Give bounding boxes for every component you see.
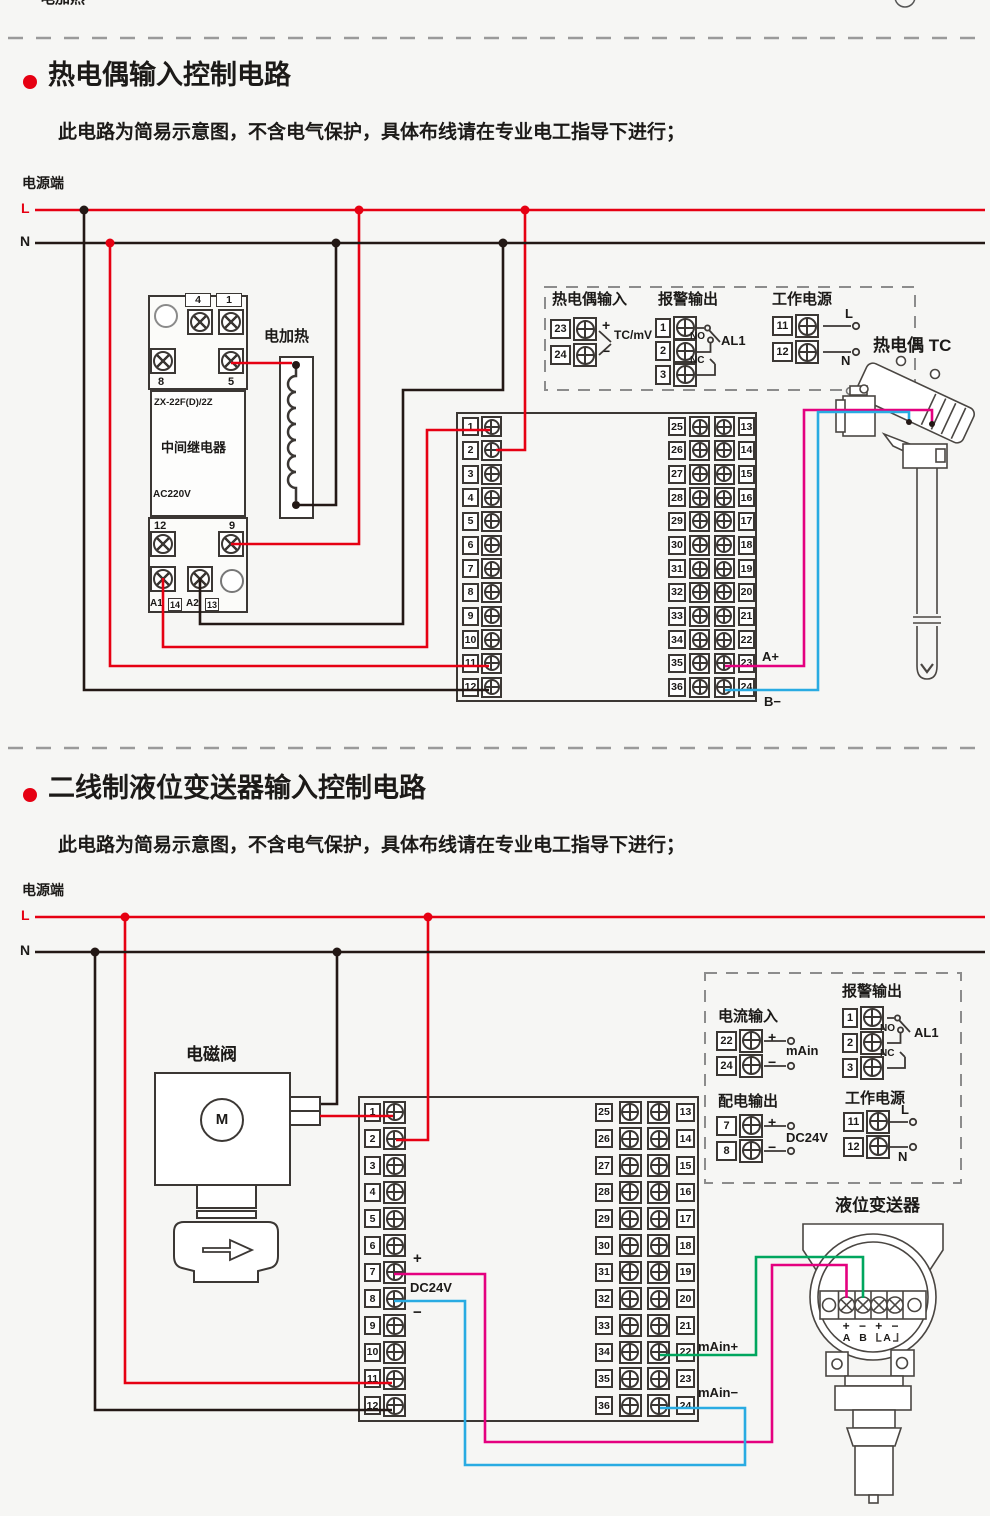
terminal-number: 2 [462, 441, 479, 460]
terminal-block-2: 1 2 3 4 5 6 7 8 [358, 1096, 699, 1422]
terminal-screw [647, 1367, 670, 1390]
wiring-diagram-page: 电加热 热电偶输入控制电路 此电路为简易示意图，不含电气保护，具体布线请在专业电… [0, 0, 990, 1516]
terminal-screw [647, 1127, 670, 1150]
terminal-number: 15 [738, 465, 755, 484]
terminal-block-1: 1 2 3 4 5 6 7 8 [456, 412, 757, 702]
section1-power-label: 电源端 [22, 175, 64, 191]
terminal-screw [714, 677, 735, 698]
terminal-row: 6 [364, 1234, 406, 1257]
io1-alarm-rows: 1 2 3 [655, 316, 697, 387]
io-terminal-number: 23 [550, 319, 571, 339]
terminal-number: 14 [738, 441, 755, 460]
solenoid-valve-drawing [155, 1073, 320, 1282]
terminal-screw [647, 1394, 670, 1417]
terminal-row: 6 [462, 535, 502, 556]
terminal-number: 29 [668, 512, 686, 531]
clipped-screw-icon [895, 0, 915, 7]
terminal-row: 5 [462, 511, 502, 532]
relay-model: ZX-22F(D)/2Z [154, 398, 213, 409]
terminal-number: 31 [668, 559, 686, 578]
heater-label: 电加热 [264, 328, 309, 345]
terminal-number: 5 [364, 1209, 381, 1228]
io-terminal-number: 3 [655, 365, 671, 385]
io-terminal-row: 7 + [716, 1113, 776, 1138]
terminal-number: 14 [676, 1129, 695, 1148]
terminal-screw [714, 487, 735, 508]
terminal-row: 32 20 [595, 1287, 695, 1310]
terminal-number: 12 [364, 1396, 381, 1415]
terminal-number: 26 [595, 1129, 613, 1148]
thermocouple-label: 热电偶 TC [873, 336, 951, 356]
terminal-screw [619, 1207, 642, 1230]
terminal-screw [481, 416, 502, 437]
terminal-row: 35 23 [595, 1367, 695, 1390]
io2-alarm-rows: 1 2 3 [842, 1005, 884, 1080]
relay-pin-label: A1 [150, 598, 163, 610]
terminal-screw [714, 464, 735, 485]
section1-bullet-icon [23, 75, 37, 89]
terminal-number: 9 [462, 607, 479, 626]
main-plus-label: mAin+ [698, 1340, 738, 1355]
terminal-screw [714, 511, 735, 532]
flow-arrow-icon [203, 1240, 252, 1260]
terminal-number: 6 [462, 536, 479, 555]
terminal-right-columns: 25 13 26 14 27 15 28 16 29 [595, 1099, 695, 1419]
terminal-screw [647, 1101, 670, 1124]
relay-pin-label: 5 [228, 376, 234, 389]
polarity-label: − [768, 1139, 776, 1155]
terminal-screw [619, 1181, 642, 1204]
terminal-screw [647, 1234, 670, 1257]
terminal-row: 30 18 [595, 1234, 695, 1257]
io-terminal-row: 11 [772, 313, 819, 339]
terminal-screw [619, 1314, 642, 1337]
terminal-number: 11 [364, 1369, 381, 1388]
level-transmitter-drawing [803, 1224, 943, 1503]
wire-label-b-minus: B− [764, 695, 781, 710]
terminal-number: 4 [364, 1183, 381, 1202]
terminal-screw [714, 606, 735, 627]
terminal-number: 23 [738, 654, 755, 673]
terminal-screw [383, 1341, 406, 1364]
io-terminal-number: 1 [842, 1008, 858, 1028]
terminal-row: 12 [462, 677, 502, 698]
terminal-row: 27 15 [668, 464, 755, 485]
terminal-screw [383, 1394, 406, 1417]
terminal-screw [689, 535, 710, 556]
terminal-screw [714, 416, 735, 437]
terminal-screw [714, 535, 735, 556]
terminal-screw [481, 629, 502, 650]
io-terminal-row: 24 − [716, 1053, 776, 1078]
terminal-number: 30 [595, 1236, 613, 1255]
terminal-number: 21 [676, 1316, 695, 1335]
io1-nc-label: NC [690, 355, 704, 367]
relay-hole-icon [154, 304, 178, 328]
polarity-label: − [602, 343, 610, 359]
terminal-row: 2 [462, 440, 502, 461]
terminal-number: 5 [462, 512, 479, 531]
io-terminal-number: 2 [655, 341, 671, 361]
io2-no-label: NO [880, 1023, 895, 1035]
terminal-row: 8 [462, 582, 502, 603]
terminal-row: 34 22 [668, 629, 755, 650]
terminal-number: 28 [668, 488, 686, 507]
dc-plus-label: + [413, 1250, 422, 1267]
relay-screw [218, 348, 244, 374]
terminal-screw [619, 1127, 642, 1150]
relay-screw [187, 309, 213, 335]
io-terminal-number: 24 [716, 1056, 737, 1076]
terminal-row: 34 22 [595, 1341, 695, 1364]
io1-tc-rows: 23 + 24 − [550, 316, 610, 368]
terminal-number: 32 [668, 583, 686, 602]
terminal-row: 3 [462, 464, 502, 485]
io-terminal-number: 8 [716, 1141, 737, 1161]
section1-title: 热电偶输入控制电路 [48, 60, 291, 91]
thermocouple-drawing [836, 357, 977, 680]
terminal-row: 7 [462, 558, 502, 579]
io1-tc-title: 热电偶输入 [552, 291, 627, 308]
relay-screw [218, 309, 244, 335]
terminal-right-columns: 25 13 26 14 27 15 28 16 29 [668, 415, 755, 699]
terminal-screw [689, 440, 710, 461]
io-terminal-number: 22 [716, 1031, 737, 1051]
terminal-screw [383, 1207, 406, 1230]
terminal-screw [383, 1261, 406, 1284]
terminal-number: 8 [364, 1289, 381, 1308]
terminal-row: 4 [462, 487, 502, 508]
io2-current-title: 电流输入 [718, 1008, 778, 1025]
terminal-screw [714, 653, 735, 674]
section1-subtitle: 此电路为简易示意图，不含电气保护，具体布线请在专业电工指导下进行； [58, 122, 685, 144]
terminal-screw [619, 1154, 642, 1177]
io-terminal-row: 11 [843, 1109, 890, 1134]
terminal-screw [714, 629, 735, 650]
heater-symbol [280, 357, 313, 518]
terminal-number: 17 [676, 1209, 695, 1228]
terminal-number: 3 [364, 1156, 381, 1175]
io-terminal-screw [673, 363, 697, 387]
terminal-screw [481, 677, 502, 698]
io-terminal-screw [739, 1139, 763, 1163]
terminal-screw [383, 1154, 406, 1177]
terminal-row: 33 21 [668, 606, 755, 627]
terminal-screw [383, 1101, 406, 1124]
power-pigtails-2 [889, 1122, 908, 1147]
terminal-row: 11 [364, 1367, 406, 1390]
io-terminal-row: 22 + [716, 1028, 776, 1053]
section1-line-n-label: N [20, 233, 30, 249]
terminal-row: 1 [364, 1101, 406, 1124]
terminal-row: 26 14 [595, 1127, 695, 1150]
terminal-screw [647, 1287, 670, 1310]
terminal-row: 4 [364, 1181, 406, 1204]
terminal-number: 29 [595, 1209, 613, 1228]
terminal-row: 28 16 [668, 487, 755, 508]
terminal-number: 25 [668, 417, 686, 436]
io-terminal-number: 11 [772, 316, 793, 336]
io-terminal-screw [573, 343, 597, 367]
terminal-row: 27 15 [595, 1154, 695, 1177]
terminal-screw [481, 487, 502, 508]
io-terminal-screw [795, 314, 819, 338]
io1-power-rows: 11 12 [772, 313, 819, 365]
relay-voltage: AC220V [153, 489, 191, 501]
io1-no-label: NO [690, 331, 705, 343]
terminal-row: 33 21 [595, 1314, 695, 1337]
io-terminal-row: 2 [842, 1030, 884, 1055]
io-terminal-screw [739, 1029, 763, 1053]
terminal-number: 2 [364, 1129, 381, 1148]
terminal-screw [647, 1341, 670, 1364]
terminal-row: 11 [462, 653, 502, 674]
io1-tc-note: TC/mV [614, 329, 652, 343]
io-terminal-number: 24 [550, 345, 571, 365]
wire-label-a-plus: A+ [762, 650, 779, 665]
section2-title: 二线制液位变送器输入控制电路 [48, 773, 426, 804]
relay-pin-label: 13 [205, 598, 219, 611]
io-terminal-row: 23 + [550, 316, 610, 342]
relay-screw [218, 531, 244, 557]
terminal-screw [689, 464, 710, 485]
terminal-number: 19 [738, 559, 755, 578]
io-terminal-row: 3 [655, 363, 697, 387]
valve-label: 电磁阀 [186, 1045, 237, 1065]
io-terminal-screw [573, 317, 597, 341]
io-terminal-number: 2 [842, 1033, 858, 1053]
terminal-number: 24 [676, 1396, 695, 1415]
terminal-screw [647, 1181, 670, 1204]
terminal-screw [714, 440, 735, 461]
terminal-number: 36 [595, 1396, 613, 1415]
terminal-row: 30 18 [668, 535, 755, 556]
terminal-number: 16 [676, 1183, 695, 1202]
io2-l-label: L [901, 1103, 909, 1118]
terminal-number: 30 [668, 536, 686, 555]
terminal-screw [619, 1367, 642, 1390]
terminal-screw [481, 440, 502, 461]
terminal-screw [689, 558, 710, 579]
io-terminal-row: 12 [843, 1134, 890, 1159]
io-terminal-number: 11 [843, 1112, 864, 1132]
terminal-screw [619, 1287, 642, 1310]
terminal-screw [481, 582, 502, 603]
io2-al1-label: AL1 [914, 1026, 939, 1041]
terminal-number: 34 [595, 1343, 613, 1362]
io-terminal-row: 12 [772, 339, 819, 365]
terminal-screw [481, 558, 502, 579]
section2-line-l-label: L [21, 907, 30, 923]
io-terminal-number: 1 [655, 318, 671, 338]
section2-bullet-icon [23, 788, 37, 802]
terminal-number: 31 [595, 1263, 613, 1282]
section2-power-label: 电源端 [22, 882, 64, 898]
terminal-number: 13 [676, 1103, 695, 1122]
terminal-row: 7 [364, 1261, 406, 1284]
transmitter-ab-label: A [840, 1332, 853, 1344]
terminal-number: 11 [462, 654, 479, 673]
io-terminal-number: 12 [772, 342, 793, 362]
io1-power-title: 工作电源 [772, 291, 832, 308]
terminal-number: 1 [462, 417, 479, 436]
terminal-screw [383, 1367, 406, 1390]
io1-l-label: L [845, 307, 853, 322]
terminal-number: 7 [462, 559, 479, 578]
io-terminal-number: 3 [842, 1058, 858, 1078]
relay-screw [150, 531, 176, 557]
terminal-screw [383, 1234, 406, 1257]
section1-line-l-label: L [21, 200, 30, 216]
terminal-number: 12 [462, 678, 479, 697]
relay-screw [187, 566, 213, 592]
terminal-screw [689, 606, 710, 627]
io-terminal-row: 8 − [716, 1138, 776, 1163]
terminal-number: 35 [668, 654, 686, 673]
relay-name: 中间继电器 [161, 441, 226, 456]
relay-pin-label: 8 [158, 376, 164, 389]
polarity-label: − [768, 1054, 776, 1070]
relay-screw [150, 348, 176, 374]
terminal-row: 36 24 [595, 1394, 695, 1417]
terminal-number: 6 [364, 1236, 381, 1255]
polarity-label: + [602, 317, 610, 333]
terminal-number: 10 [364, 1343, 381, 1362]
transmitter-ab-label: A [880, 1332, 894, 1344]
terminal-number: 20 [738, 583, 755, 602]
io2-dist-title: 配电输出 [718, 1093, 778, 1110]
section2-line-n-label: N [20, 942, 30, 958]
terminal-row: 25 13 [595, 1101, 695, 1124]
relay-pin-label: 4 [185, 293, 211, 307]
terminal-number: 32 [595, 1289, 613, 1308]
terminal-screw [619, 1261, 642, 1284]
terminal-row: 26 14 [668, 440, 755, 461]
terminal-row: 5 [364, 1207, 406, 1230]
terminal-screw [481, 464, 502, 485]
io-terminal-number: 12 [843, 1137, 864, 1157]
terminal-screw [383, 1287, 406, 1310]
terminal-left-column: 1 2 3 4 5 6 7 8 [462, 415, 502, 699]
io2-power-rows: 11 12 [843, 1109, 890, 1159]
terminal-number: 20 [676, 1289, 695, 1308]
io-terminal-row: 3 [842, 1055, 884, 1080]
terminal-screw [689, 582, 710, 603]
terminal-number: 36 [668, 678, 686, 697]
terminal-number: 10 [462, 630, 479, 649]
terminal-number: 9 [364, 1316, 381, 1335]
io-terminal-screw [866, 1135, 890, 1159]
io-terminal-row: 1 [842, 1005, 884, 1030]
intermediate-relay: 4 1 8 5 ZX-22F(D)/2Z 中间继电器 AC220V 12 9 A… [148, 293, 248, 613]
terminal-row: 10 [462, 629, 502, 650]
io2-main-note: mAin [786, 1044, 819, 1059]
io1-alarm-title: 报警输出 [658, 291, 718, 308]
terminal-number: 22 [676, 1343, 695, 1362]
terminal-number: 4 [462, 488, 479, 507]
terminal-number: 7 [364, 1263, 381, 1282]
terminal-number: 23 [676, 1369, 695, 1388]
terminal-row: 1 [462, 416, 502, 437]
terminal-screw [481, 511, 502, 532]
terminal-row: 31 19 [595, 1261, 695, 1284]
io2-dist-rows: 7 + 8 − [716, 1113, 776, 1163]
io1-n-label: N [841, 354, 850, 369]
terminal-number: 26 [668, 441, 686, 460]
terminal-row: 36 24 [668, 677, 755, 698]
terminal-number: 35 [595, 1369, 613, 1388]
terminal-number: 28 [595, 1183, 613, 1202]
terminal-screw [619, 1101, 642, 1124]
terminal-number: 8 [462, 583, 479, 602]
terminal-row: 8 [364, 1287, 406, 1310]
terminal-number: 22 [738, 630, 755, 649]
terminal-screw [689, 677, 710, 698]
io2-nc-label: NC [880, 1048, 894, 1060]
terminal-screw [481, 653, 502, 674]
relay-screw [150, 566, 176, 592]
terminal-number: 34 [668, 630, 686, 649]
terminal-row: 12 [364, 1394, 406, 1417]
terminal-row: 25 13 [668, 416, 755, 437]
terminal-number: 33 [595, 1316, 613, 1335]
io2-current-rows: 22 + 24 − [716, 1028, 776, 1078]
io-terminal-screw [795, 340, 819, 364]
terminal-row: 29 17 [595, 1207, 695, 1230]
terminal-screw [647, 1154, 670, 1177]
terminal-number: 21 [738, 607, 755, 626]
io-terminal-screw [739, 1114, 763, 1138]
polarity-label: + [768, 1029, 776, 1045]
io1-al1-label: AL1 [721, 334, 746, 349]
io2-power-title: 工作电源 [845, 1090, 905, 1107]
terminal-screw [383, 1314, 406, 1337]
terminal-number: 18 [738, 536, 755, 555]
terminal-left-column: 1 2 3 4 5 6 7 8 [364, 1099, 406, 1419]
terminal-number: 15 [676, 1156, 695, 1175]
dc24v-label: DC24V [410, 1281, 452, 1296]
io-terminal-number: 7 [716, 1116, 737, 1136]
transmitter-ab-label: B [856, 1332, 870, 1344]
terminal-screw [619, 1341, 642, 1364]
terminal-screw [647, 1207, 670, 1230]
io-terminal-screw [739, 1054, 763, 1078]
terminal-row: 10 [364, 1341, 406, 1364]
terminal-screw [619, 1394, 642, 1417]
valve-motor-label: M [212, 1111, 232, 1128]
terminal-number: 25 [595, 1103, 613, 1122]
terminal-number: 13 [738, 417, 755, 436]
terminal-number: 1 [364, 1103, 381, 1122]
main-minus-label: mAin− [698, 1386, 738, 1401]
terminal-row: 29 17 [668, 511, 755, 532]
terminal-row: 28 16 [595, 1181, 695, 1204]
terminal-number: 33 [668, 607, 686, 626]
terminal-number: 16 [738, 488, 755, 507]
terminal-screw [689, 511, 710, 532]
transmitter-screw-icons [839, 1297, 904, 1313]
polarity-label: + [768, 1114, 776, 1130]
terminal-screw [383, 1127, 406, 1150]
terminal-screw [647, 1261, 670, 1284]
terminal-screw [714, 582, 735, 603]
terminal-row: 9 [462, 606, 502, 627]
terminal-row: 2 [364, 1127, 406, 1150]
relay-hole-icon [220, 569, 244, 593]
terminal-number: 18 [676, 1236, 695, 1255]
terminal-screw [689, 487, 710, 508]
terminal-number: 27 [595, 1156, 613, 1175]
